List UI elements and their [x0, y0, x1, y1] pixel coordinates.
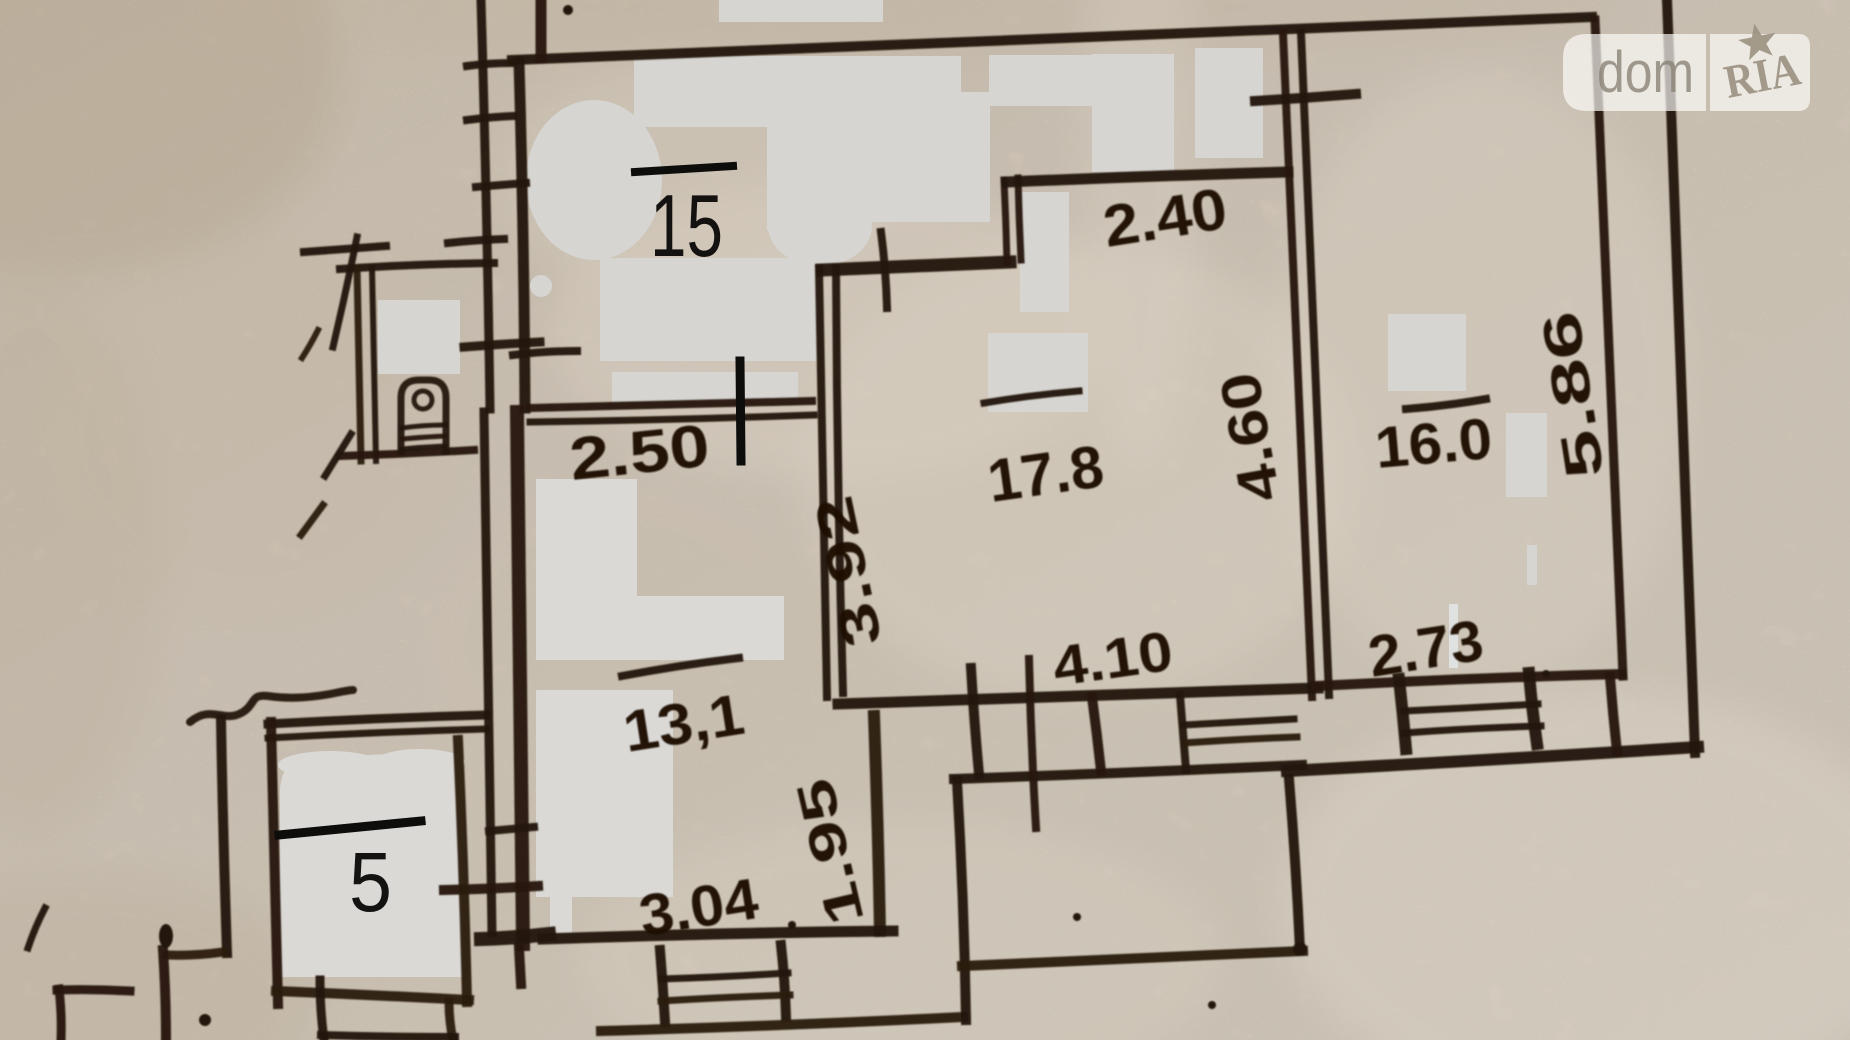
svg-text:5: 5 — [349, 835, 392, 929]
svg-text:dom: dom — [1597, 40, 1694, 105]
svg-text:15: 15 — [650, 176, 723, 275]
svg-text:16.0: 16.0 — [1372, 406, 1494, 481]
